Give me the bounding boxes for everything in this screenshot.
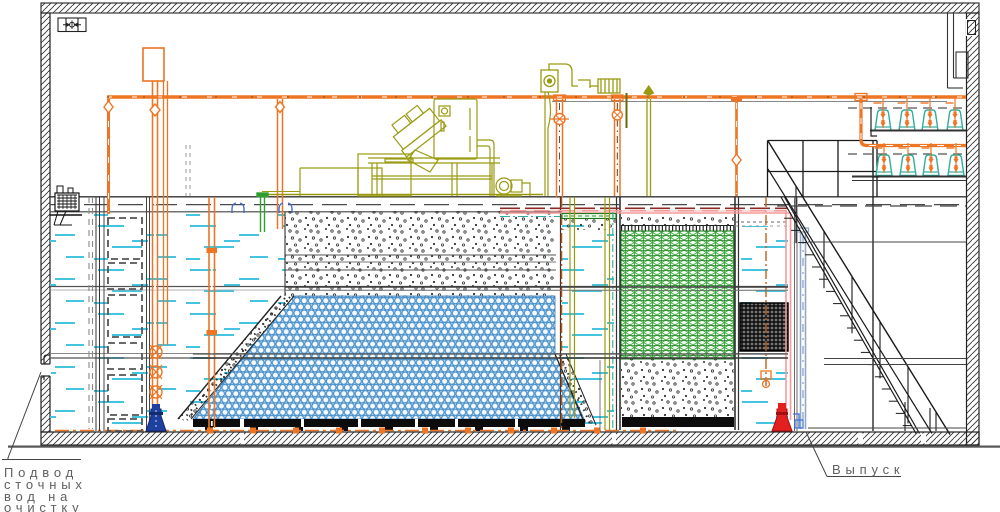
svg-text:Выпуск: Выпуск — [832, 462, 904, 477]
svg-text:очистку: очистку — [4, 500, 83, 512]
